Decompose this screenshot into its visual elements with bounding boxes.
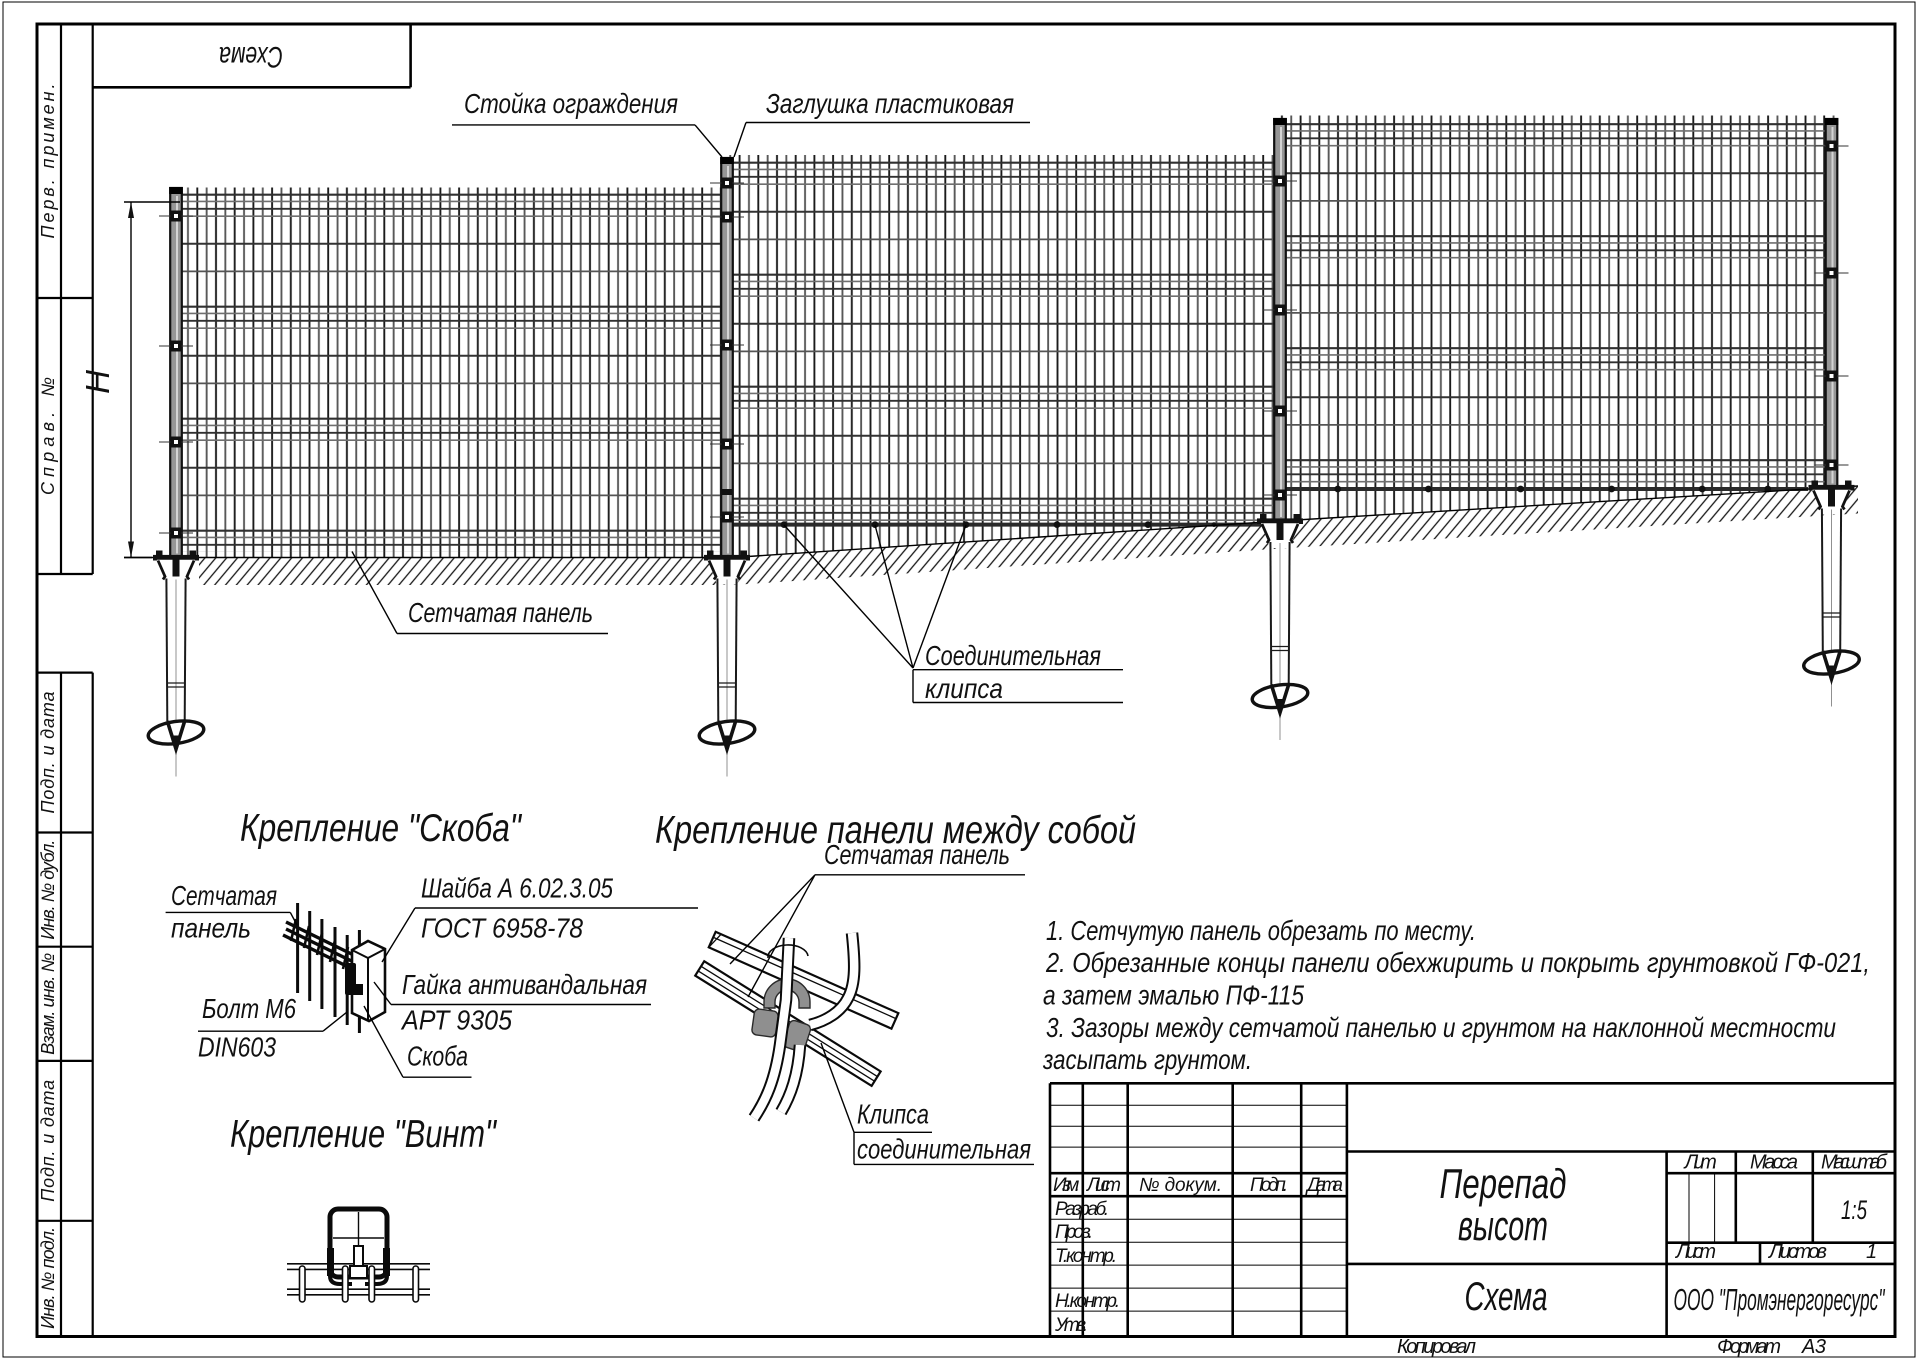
svg-text:Перв. примен.: Перв. примен. bbox=[38, 84, 58, 239]
svg-text:Сетчатая панель: Сетчатая панель bbox=[824, 839, 1010, 870]
svg-text:высот: высот bbox=[1458, 1202, 1548, 1249]
svg-text:Масса: Масса bbox=[1750, 1152, 1798, 1174]
svg-text:1. Сетчутую панель обрезать по: 1. Сетчутую панель обрезать по месту. bbox=[1046, 915, 1476, 946]
svg-text:Заглушка пластиковая: Заглушка пластиковая bbox=[766, 88, 1014, 119]
svg-text:Листов: Листов bbox=[1767, 1241, 1827, 1263]
svg-text:Инв. № дубл.: Инв. № дубл. bbox=[38, 840, 58, 940]
svg-text:№ докум.: № докум. bbox=[1139, 1175, 1222, 1196]
svg-text:соединительная: соединительная bbox=[857, 1134, 1031, 1165]
svg-text:засыпать грунтом.: засыпать грунтом. bbox=[1042, 1044, 1252, 1075]
svg-text:H: H bbox=[79, 370, 116, 394]
svg-text:Перепад: Перепад bbox=[1440, 1160, 1567, 1207]
svg-text:ООО "Промэнергоресурс": ООО "Промэнергоресурс" bbox=[1674, 1282, 1886, 1317]
svg-text:Н.контр.: Н.контр. bbox=[1055, 1291, 1120, 1312]
svg-text:Изм.: Изм. bbox=[1053, 1175, 1080, 1196]
svg-text:ГОСТ 6958-78: ГОСТ 6958-78 bbox=[421, 913, 583, 944]
svg-text:Подп.: Подп. bbox=[1250, 1175, 1288, 1196]
svg-text:Схема: Схема bbox=[1465, 1275, 1548, 1319]
svg-text:Копировал: Копировал bbox=[1397, 1336, 1476, 1358]
svg-text:Инв. № подл.: Инв. № подл. bbox=[38, 1227, 58, 1329]
svg-text:3. Зазоры между сетчатой панел: 3. Зазоры между сетчатой панелью и грунт… bbox=[1046, 1012, 1836, 1043]
svg-text:Разраб.: Разраб. bbox=[1055, 1199, 1109, 1220]
svg-text:Утв.: Утв. bbox=[1054, 1315, 1088, 1336]
svg-text:Дата: Дата bbox=[1305, 1175, 1343, 1196]
svg-text:Лит.: Лит. bbox=[1683, 1152, 1718, 1174]
svg-text:Клипса: Клипса bbox=[857, 1099, 929, 1130]
svg-text:Пров.: Пров. bbox=[1055, 1222, 1093, 1243]
svg-text:А3: А3 bbox=[1801, 1336, 1826, 1358]
svg-text:Подп. и дата: Подп. и дата bbox=[38, 692, 58, 814]
svg-text:Соединительная: Соединительная bbox=[925, 640, 1101, 671]
svg-text:Гайка антивандальная: Гайка антивандальная bbox=[402, 969, 647, 1000]
svg-text:Сетчатая панель: Сетчатая панель bbox=[408, 597, 593, 628]
svg-text:Лист: Лист bbox=[1085, 1175, 1121, 1196]
svg-text:2. Обрезанные концы панели обе: 2. Обрезанные концы панели обехжирить и … bbox=[1045, 947, 1870, 978]
svg-text:Крепление "Скоба": Крепление "Скоба" bbox=[240, 807, 523, 850]
svg-text:Взам. инв. №: Взам. инв. № bbox=[38, 953, 58, 1055]
svg-text:Масштаб: Масштаб bbox=[1821, 1152, 1888, 1174]
svg-text:Лист: Лист bbox=[1674, 1241, 1716, 1263]
svg-text:Т.контр.: Т.контр. bbox=[1055, 1246, 1117, 1267]
svg-text:DIN603: DIN603 bbox=[198, 1031, 276, 1062]
svg-text:1: 1 bbox=[1866, 1241, 1877, 1263]
svg-text:клипса: клипса bbox=[925, 673, 1003, 704]
svg-text:Сетчатая: Сетчатая bbox=[171, 880, 277, 911]
svg-text:Формат: Формат bbox=[1717, 1336, 1781, 1358]
svg-text:Подп. и дата: Подп. и дата bbox=[38, 1080, 58, 1202]
svg-text:1:5: 1:5 bbox=[1841, 1195, 1868, 1225]
svg-text:а затем эмалью ПФ-115: а затем эмалью ПФ-115 bbox=[1043, 979, 1304, 1010]
svg-text:Стойка ограждения: Стойка ограждения bbox=[464, 88, 678, 119]
svg-text:Болт М6: Болт М6 bbox=[202, 993, 296, 1024]
svg-text:Скоба: Скоба bbox=[407, 1040, 468, 1071]
svg-text:АРТ 9305: АРТ 9305 bbox=[400, 1005, 512, 1036]
svg-text:Схема: Схема bbox=[219, 40, 283, 73]
svg-text:Шайба А 6.02.3.05: Шайба А 6.02.3.05 bbox=[421, 873, 613, 904]
svg-text:Крепление "Винт": Крепление "Винт" bbox=[230, 1113, 498, 1156]
svg-text:панель: панель bbox=[171, 913, 251, 944]
